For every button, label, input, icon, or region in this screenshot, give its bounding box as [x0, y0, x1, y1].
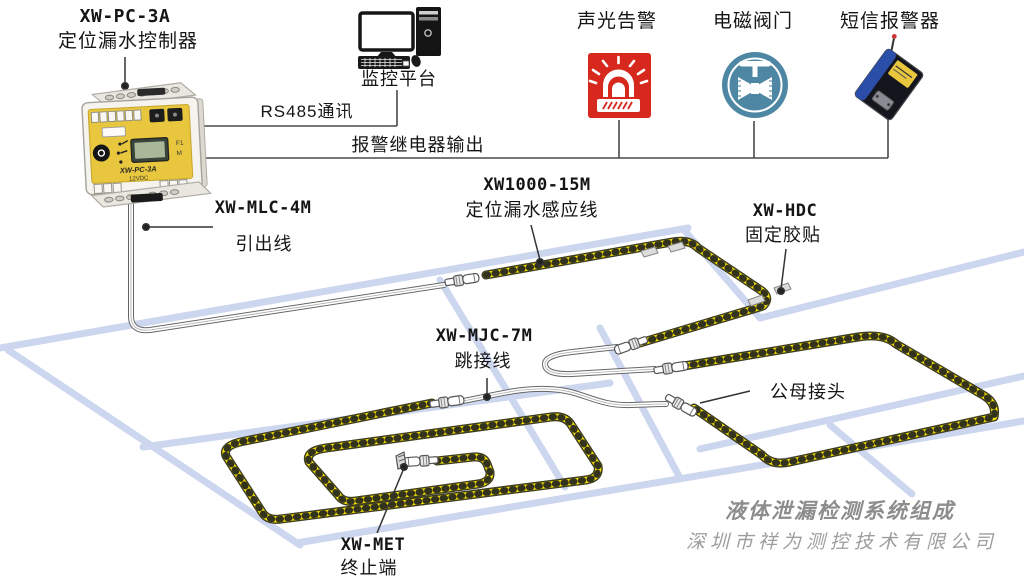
leadout-cable — [131, 199, 444, 330]
bus-lines — [198, 90, 888, 158]
terminator-model-label: XW-MET — [341, 537, 405, 554]
relay-output-label: 报警继电器输出 — [352, 136, 485, 154]
controller-model-label: XW-PC-3A — [80, 8, 171, 26]
jumper-name-label: 跳接线 — [455, 352, 512, 370]
rs485-label: RS485通讯 — [261, 103, 354, 120]
leadout-model-label: XW-MLC-4M — [215, 200, 312, 217]
connector-spiral-start — [429, 394, 464, 409]
monitor-icon — [360, 13, 413, 50]
sms-alarm-label: 短信报警器 — [840, 12, 940, 31]
terminator-name-label: 终止端 — [341, 559, 398, 577]
controller-panel-btn2: M — [176, 150, 182, 157]
monitor-platform-label: 监控平台 — [361, 70, 437, 88]
diagram-title: 液体泄漏检测系统组成 — [725, 500, 955, 521]
jumper-model-label: XW-MJC-7M — [436, 328, 533, 345]
controller-device: F1 M XW-PC-3A 12VDC — [81, 82, 211, 208]
jumper-cable-upper — [545, 347, 655, 374]
connector-leadout — [444, 272, 479, 288]
sound-light-alarm-label: 声光告警 — [577, 12, 657, 31]
sound-light-alarm-icon — [588, 53, 651, 118]
sms-alarm-icon — [851, 33, 934, 121]
leadout-name-label: 引出线 — [236, 235, 293, 253]
controller-name-label: 定位漏水控制器 — [58, 32, 198, 51]
company-name: 深圳市祥为测控技术有限公司 — [686, 533, 998, 552]
solenoid-valve-icon — [722, 52, 788, 118]
tape-model-label: XW-HDC — [753, 203, 817, 220]
tape-name-label: 固定胶贴 — [745, 226, 821, 244]
controller-panel-btn1: F1 — [176, 140, 184, 147]
connector-label: 公母接头 — [770, 383, 846, 401]
diagram-canvas: F1 M XW-PC-3A 12VDC — [0, 0, 1024, 579]
valve-label: 电磁阀门 — [713, 12, 793, 31]
sensing-name-label: 定位漏水感应线 — [466, 201, 599, 219]
leak-detection-system-diagram: F1 M XW-PC-3A 12VDC — [0, 0, 1024, 579]
monitor-pc-icon — [358, 7, 441, 69]
controller-panel-voltage: 12VDC — [129, 176, 149, 183]
sensing-model-label: XW1000-15M — [483, 177, 590, 194]
connector-loop2-start — [653, 360, 688, 376]
